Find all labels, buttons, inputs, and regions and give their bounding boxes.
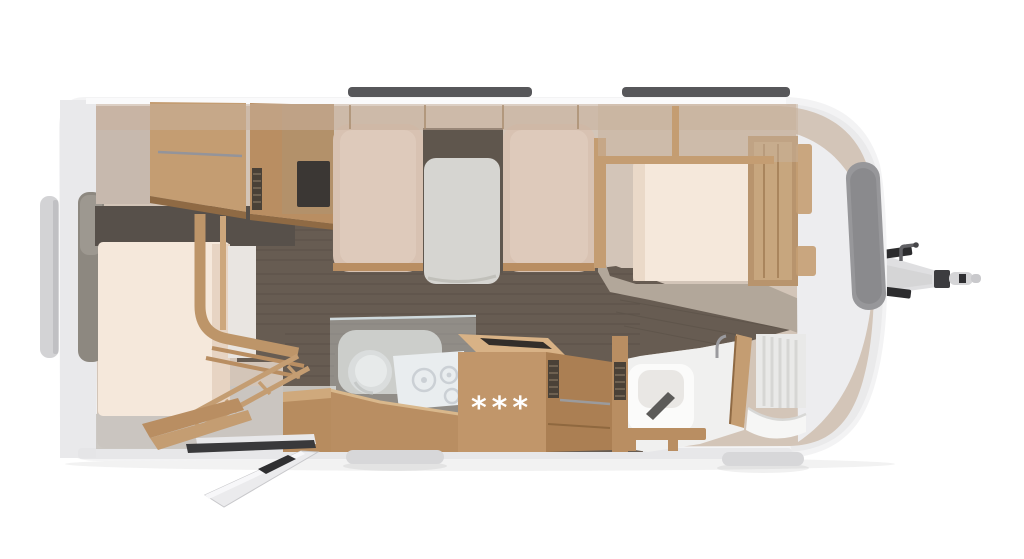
tow-hitch	[872, 242, 981, 299]
floorplan-render: ***	[0, 0, 1024, 559]
front-step	[722, 452, 804, 466]
caravan-floorplan-screenshot: ***	[0, 0, 1024, 559]
dinette-bench-right-cushion	[510, 130, 588, 264]
coupling-head	[934, 270, 950, 288]
bathroom-bench-leg-1	[626, 440, 636, 451]
wall-shelf-1	[796, 144, 812, 214]
crank-knob	[913, 242, 919, 248]
tv-panel	[297, 161, 330, 207]
hitch-tube-notch	[959, 274, 966, 283]
bathroom-bench-leg-2	[668, 440, 678, 451]
bathroom-bench	[620, 428, 706, 440]
dinette-bench-right-base	[503, 263, 595, 271]
hitch-pad-top	[883, 246, 913, 259]
hitch-tube-cap	[971, 274, 981, 283]
entry-step	[346, 450, 444, 464]
bed-overhead	[598, 104, 798, 162]
bed-mattress	[633, 163, 757, 281]
dinette-bench-left-base	[333, 263, 423, 271]
wall-shelf-2	[796, 246, 816, 276]
bed-overhead-rail	[598, 156, 774, 164]
rear-window-cover-edge	[53, 200, 58, 354]
roof-rail-right	[622, 87, 790, 97]
bed-mattress-shade	[633, 163, 645, 281]
dinette-table	[424, 158, 500, 284]
fridge-badge: ***	[471, 391, 533, 426]
dinette-bench-left-cushion	[340, 130, 416, 264]
bed-overhead-post	[672, 106, 679, 158]
roof-rail-left	[348, 87, 532, 97]
